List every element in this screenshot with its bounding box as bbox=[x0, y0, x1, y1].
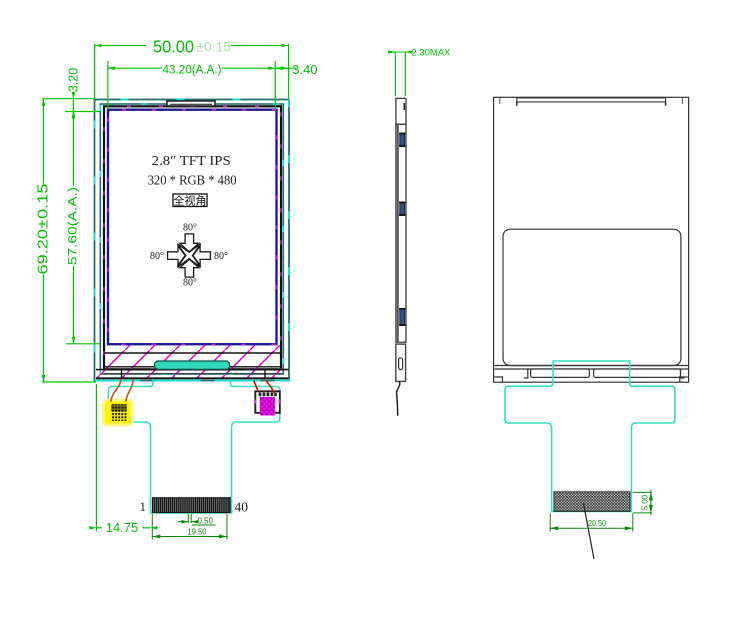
svg-text:69.20±0.15: 69.20±0.15 bbox=[36, 184, 52, 275]
svg-text:1: 1 bbox=[140, 499, 147, 514]
svg-text:全视角: 全视角 bbox=[174, 194, 207, 208]
svg-text:19.50: 19.50 bbox=[188, 528, 208, 537]
svg-text:43.20(A.A.): 43.20(A.A.) bbox=[163, 65, 222, 77]
svg-text:320 * RGB * 480: 320 * RGB * 480 bbox=[148, 174, 237, 189]
svg-text:50.00: 50.00 bbox=[153, 37, 194, 57]
svg-text:3.40: 3.40 bbox=[292, 62, 317, 77]
svg-text:3.20: 3.20 bbox=[66, 68, 80, 92]
svg-text:80°: 80° bbox=[183, 223, 197, 234]
svg-text:0.50: 0.50 bbox=[198, 516, 214, 525]
svg-text:20.50: 20.50 bbox=[588, 519, 606, 528]
svg-text:57.60(A.A.): 57.60(A.A.) bbox=[67, 187, 79, 265]
svg-text:2.30MAX: 2.30MAX bbox=[412, 48, 451, 58]
svg-text:80°: 80° bbox=[150, 251, 164, 262]
svg-text:80°: 80° bbox=[214, 251, 228, 262]
svg-text:80°: 80° bbox=[183, 278, 197, 289]
svg-text:14.75: 14.75 bbox=[106, 520, 139, 535]
svg-text:±0.15: ±0.15 bbox=[197, 40, 232, 55]
svg-text:5.00: 5.00 bbox=[641, 494, 650, 510]
svg-text:2.8″ TFT IPS: 2.8″ TFT IPS bbox=[152, 154, 231, 169]
svg-text:40: 40 bbox=[235, 500, 249, 515]
